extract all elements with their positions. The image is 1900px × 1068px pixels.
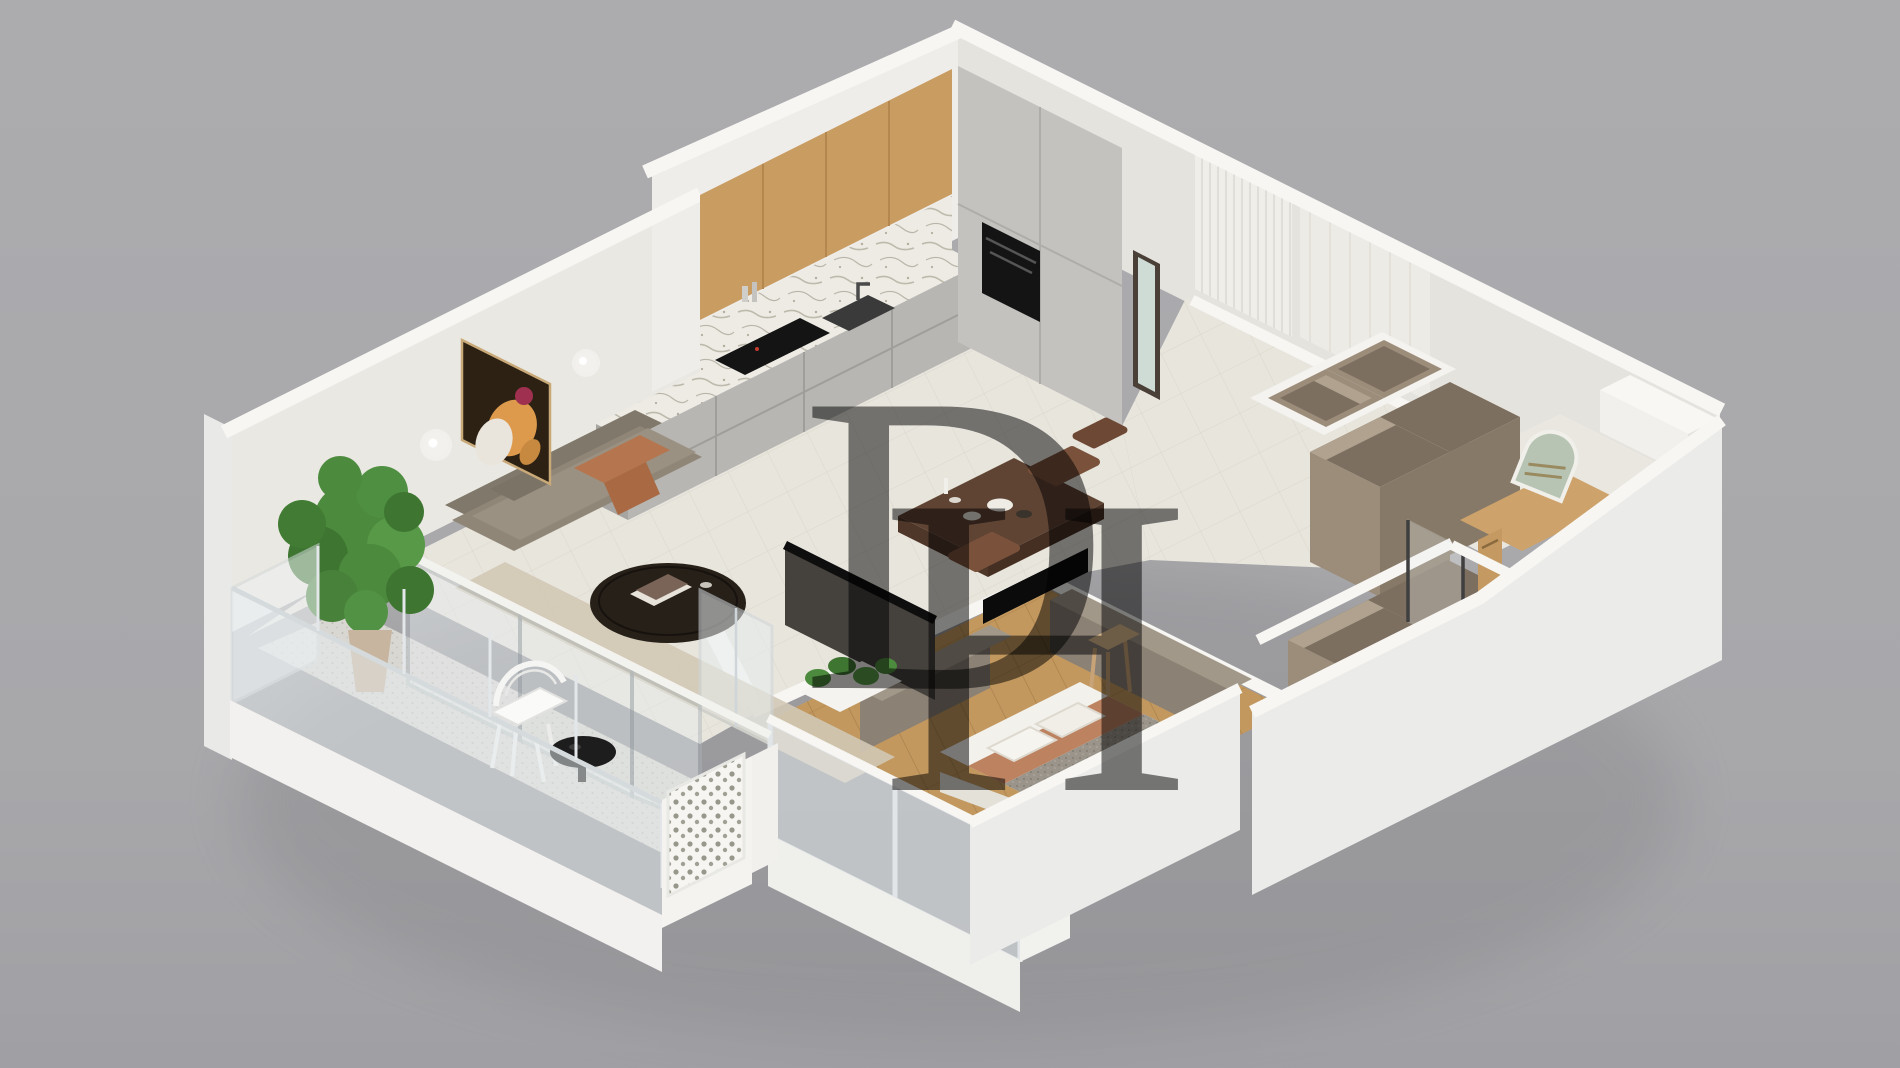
left-outer-wall-strip — [204, 414, 232, 760]
wall-sconce — [420, 429, 452, 461]
watermark-letter-h: H — [880, 408, 1191, 884]
cooktop-indicator — [755, 347, 759, 351]
counter-bottle — [742, 286, 748, 302]
mirror-glass — [1138, 257, 1155, 392]
wall-sconce — [572, 349, 600, 377]
cup — [700, 582, 712, 588]
apartment-render: D H — [0, 0, 1900, 1068]
counter-bottle — [752, 282, 757, 302]
wall-between-balcony-bedroom — [752, 743, 778, 873]
